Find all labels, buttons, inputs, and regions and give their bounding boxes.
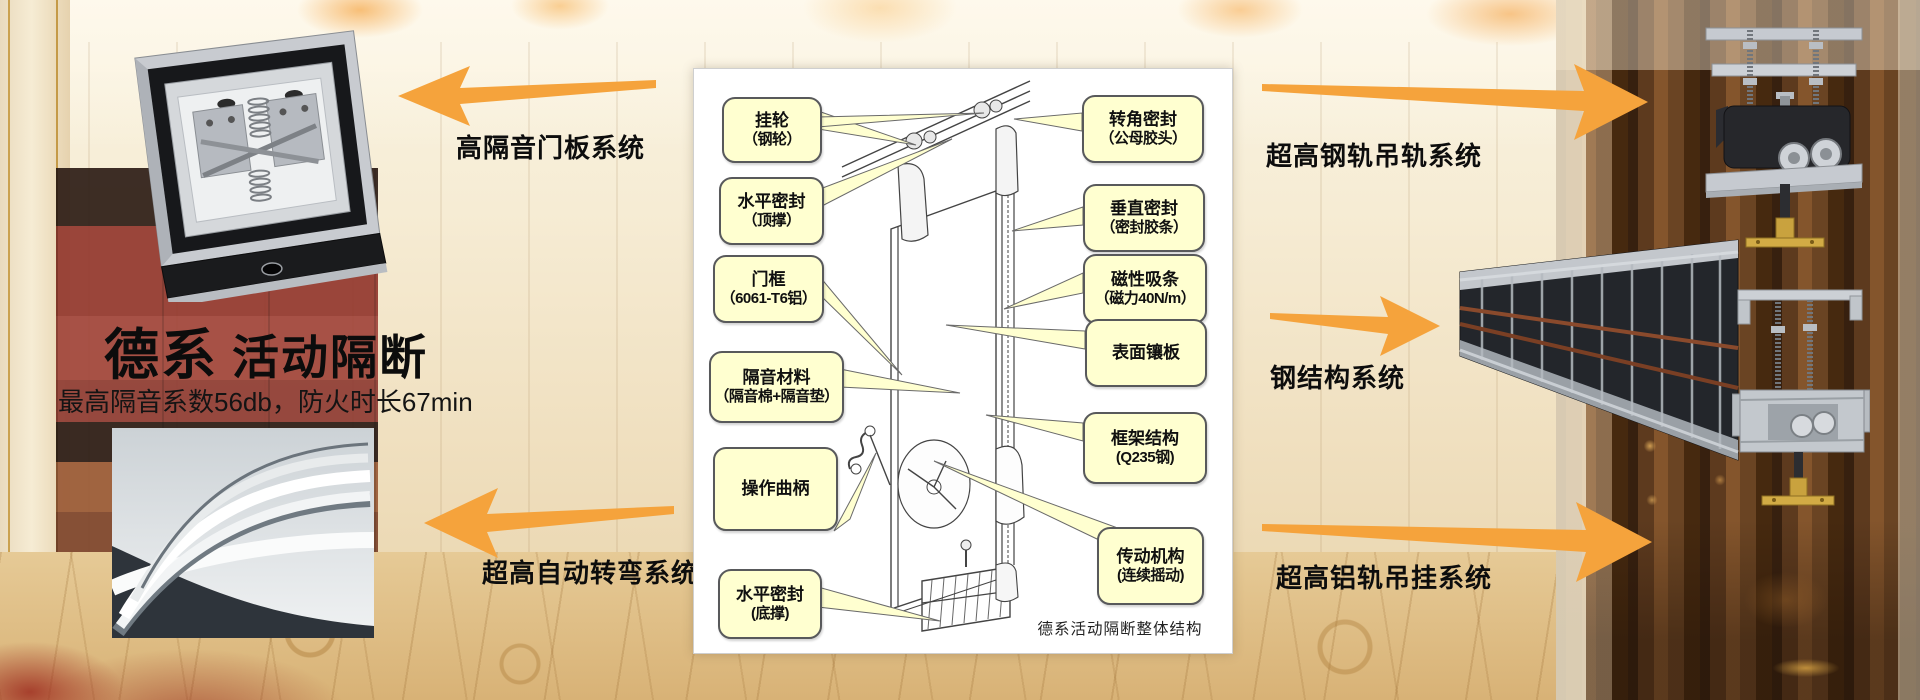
steel-rail-trolley-photo [1698, 6, 1870, 250]
callout-text: 水平密封 [736, 584, 804, 605]
callout-text: （密封胶条） [1100, 219, 1187, 238]
callout-hanger-wheel: 挂轮 （钢轮） [722, 97, 822, 163]
callout-text: （顶撑） [742, 212, 800, 231]
callout-transmission-mechanism: 传动机构 (连续摇动) [1097, 527, 1204, 605]
callout-sound-insulation-material: 隔音材料 （隔音棉+隔音垫） [709, 351, 844, 423]
curved-track-detail-photo [112, 428, 374, 638]
title-emphasis: 德系 [104, 324, 218, 386]
callout-text: (连续摇动) [1117, 567, 1184, 586]
callout-text: (Q235钢) [1116, 449, 1174, 468]
callout-text: 表面镶板 [1112, 342, 1180, 363]
callout-text: 门框 [752, 269, 786, 290]
arrow-right-steel-rail [1262, 64, 1648, 145]
callout-text: 垂直密封 [1110, 198, 1178, 219]
callout-text: (底撑) [751, 605, 789, 624]
label-aluminum-rail-system: 超高铝轨吊挂系统 [1276, 558, 1492, 595]
slide: 高隔音门板系统 超高自动转弯系统 超高钢轨吊轨系统 钢结构系统 超高铝轨吊挂系统… [0, 0, 1920, 700]
arrow-left-door-panel [398, 66, 656, 131]
label-steel-rail-system: 超高钢轨吊轨系统 [1266, 136, 1482, 173]
page-title: 德系活动隔断 [104, 310, 428, 390]
label-steel-structure-system: 钢结构系统 [1270, 358, 1405, 395]
callout-operating-crank: 操作曲柄 [713, 447, 838, 531]
callout-surface-panel: 表面镶板 [1085, 319, 1207, 387]
callout-text: （6061-T6铝） [721, 290, 817, 309]
callout-text: 水平密封 [738, 191, 806, 212]
subtitle: 最高隔音系数56db，防火时长67min [58, 382, 473, 419]
callout-corner-seal: 转角密封 （公母胶头） [1082, 95, 1204, 163]
callout-text: （磁力40N/m） [1095, 290, 1196, 309]
arrow-right-steel-structure [1270, 296, 1440, 361]
aluminum-rail-trolley-photo [1732, 286, 1870, 516]
callout-text: 隔音材料 [743, 367, 811, 388]
callout-text: 磁性吸条 [1111, 269, 1179, 290]
callout-text: 框架结构 [1111, 428, 1179, 449]
callout-text: （钢轮） [743, 131, 801, 150]
callout-text: （公母胶头） [1099, 130, 1186, 149]
callout-vertical-seal: 垂直密封 （密封胶条） [1083, 184, 1205, 252]
label-auto-turning-system: 超高自动转弯系统 [482, 553, 698, 590]
callout-text: 操作曲柄 [742, 478, 810, 499]
title-rest: 活动隔断 [232, 331, 428, 384]
callout-door-frame: 门框 （6061-T6铝） [713, 255, 824, 323]
callout-text: 转角密封 [1109, 109, 1177, 130]
callout-text: （隔音棉+隔音垫） [714, 388, 838, 407]
callout-magnetic-strip: 磁性吸条 （磁力40N/m） [1083, 254, 1207, 324]
diagram-panel: 挂轮 （钢轮） 水平密封 （顶撑） 门框 （6061-T6铝） 隔音材料 （隔音… [693, 68, 1233, 654]
door-panel-mechanism-photo [112, 10, 397, 302]
callout-horizontal-seal-top: 水平密封 （顶撑） [719, 177, 824, 245]
callout-text: 挂轮 [755, 110, 789, 131]
arrow-left-auto-turning [424, 488, 674, 563]
callout-text: 传动机构 [1117, 546, 1185, 567]
steel-structure-frame-photo [1452, 228, 1744, 468]
label-door-panel-system: 高隔音门板系统 [456, 128, 645, 165]
diagram-caption: 德系活动隔断整体结构 [1030, 617, 1210, 639]
callout-horizontal-seal-bottom: 水平密封 (底撑) [718, 569, 822, 639]
callout-frame-structure: 框架结构 (Q235钢) [1083, 412, 1207, 484]
